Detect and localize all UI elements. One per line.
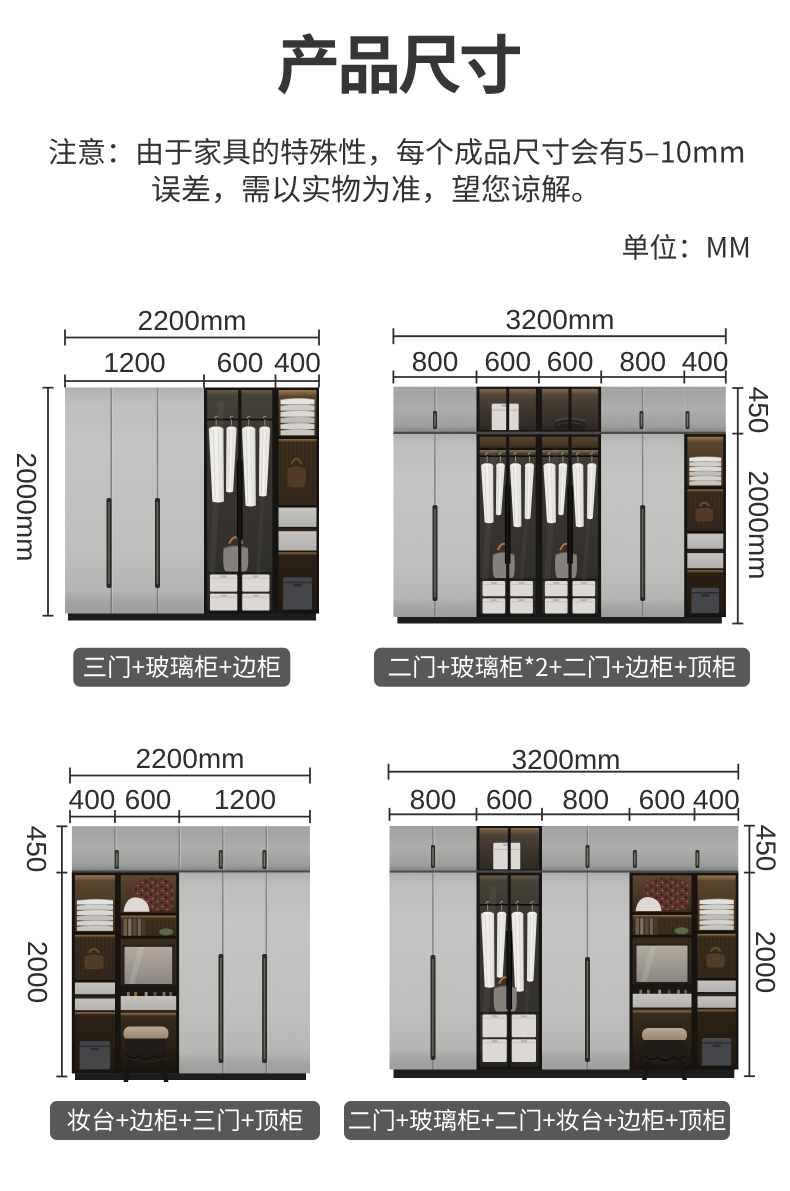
svg-text:600: 600: [547, 346, 594, 377]
svg-text:3200mm: 3200mm: [506, 304, 615, 335]
svg-text:2000mm: 2000mm: [11, 453, 42, 562]
svg-text:600: 600: [486, 784, 533, 815]
svg-text:400: 400: [69, 784, 116, 815]
svg-text:2000mm: 2000mm: [743, 471, 774, 580]
svg-text:450: 450: [751, 825, 782, 872]
svg-text:400: 400: [274, 347, 321, 378]
svg-text:400: 400: [682, 346, 729, 377]
svg-text:2000: 2000: [22, 941, 53, 1003]
svg-text:800: 800: [410, 784, 457, 815]
svg-text:1200: 1200: [103, 347, 165, 378]
svg-text:400: 400: [693, 784, 740, 815]
svg-text:2200mm: 2200mm: [138, 305, 247, 336]
svg-text:600: 600: [217, 347, 264, 378]
svg-text:800: 800: [412, 346, 459, 377]
svg-text:2200mm: 2200mm: [136, 743, 245, 774]
svg-text:600: 600: [125, 784, 172, 815]
svg-text:600: 600: [639, 784, 686, 815]
svg-text:800: 800: [619, 346, 666, 377]
svg-text:1200: 1200: [214, 784, 276, 815]
svg-text:800: 800: [562, 784, 609, 815]
svg-text:450: 450: [21, 826, 52, 873]
svg-text:450: 450: [743, 387, 774, 434]
svg-text:600: 600: [484, 346, 531, 377]
svg-text:3200mm: 3200mm: [512, 744, 621, 775]
svg-text:2000: 2000: [750, 931, 781, 993]
